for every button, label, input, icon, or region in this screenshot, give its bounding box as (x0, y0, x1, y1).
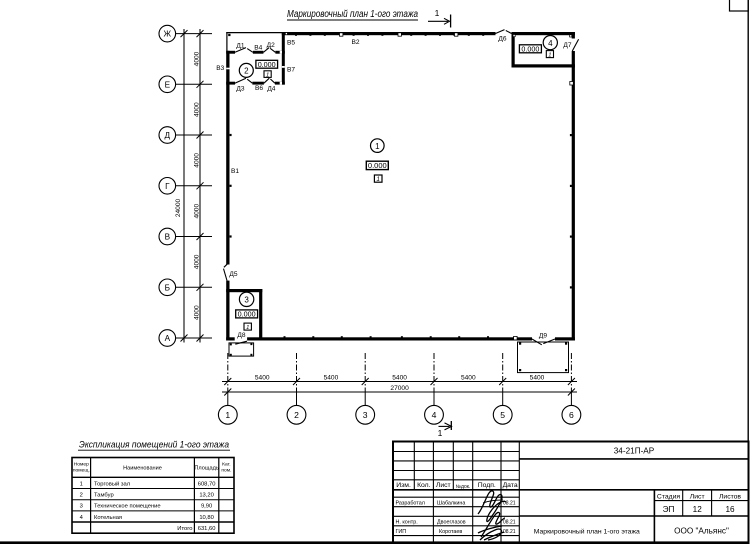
svg-text:5400: 5400 (392, 374, 407, 381)
svg-text:Лист: Лист (436, 482, 451, 489)
svg-text:10,80: 10,80 (199, 515, 214, 521)
svg-text:0.000: 0.000 (368, 161, 387, 170)
svg-text:5400: 5400 (461, 374, 476, 381)
svg-text:1: 1 (377, 177, 380, 183)
svg-text:Д2: Д2 (267, 42, 275, 49)
svg-text:Д6: Д6 (498, 36, 506, 43)
svg-text:А: А (165, 334, 171, 343)
svg-text:08.21: 08.21 (503, 500, 516, 506)
svg-text:помещ.: помещ. (73, 469, 90, 474)
svg-text:2: 2 (244, 67, 249, 76)
svg-text:Котельная: Котельная (94, 515, 122, 521)
svg-text:4: 4 (432, 410, 437, 420)
svg-text:Б: Б (165, 283, 170, 292)
svg-text:4: 4 (548, 39, 553, 48)
svg-text:ГИП: ГИП (396, 529, 407, 535)
svg-text:5400: 5400 (530, 374, 545, 381)
svg-text:ООО "Альянс": ООО "Альянс" (674, 527, 729, 536)
svg-text:3: 3 (80, 504, 83, 510)
svg-text:Лист: Лист (690, 493, 705, 500)
svg-text:27000: 27000 (390, 385, 409, 392)
svg-text:Экспликация помещений 1-ого эт: Экспликация помещений 1-ого этажа (79, 440, 229, 450)
svg-text:Д1: Д1 (236, 43, 244, 50)
svg-text:В7: В7 (287, 67, 295, 74)
svg-text:5400: 5400 (255, 374, 270, 381)
svg-text:Разработал: Разработал (396, 500, 425, 506)
svg-text:2: 2 (80, 493, 83, 499)
svg-text:Кат.: Кат. (222, 462, 231, 468)
svg-text:0.000: 0.000 (258, 60, 276, 69)
svg-text:В5: В5 (287, 39, 295, 46)
svg-text:Шабалкина: Шабалкина (437, 500, 465, 506)
svg-text:0.000: 0.000 (238, 310, 256, 319)
svg-text:В6: В6 (255, 85, 263, 92)
svg-text:4000: 4000 (193, 254, 200, 269)
svg-text:В2: В2 (351, 39, 359, 46)
svg-text:5: 5 (500, 410, 505, 420)
svg-text:1: 1 (266, 72, 269, 78)
svg-text:0.000: 0.000 (521, 44, 539, 53)
svg-text:Номер: Номер (74, 462, 89, 468)
svg-text:3: 3 (363, 410, 368, 420)
svg-text:Техническое помещение: Техническое помещение (94, 504, 161, 510)
svg-text:631,60: 631,60 (198, 526, 216, 532)
svg-text:08.21: 08.21 (503, 519, 516, 525)
svg-text:№док.: №док. (456, 484, 471, 490)
svg-text:4000: 4000 (193, 204, 200, 219)
svg-text:13,20: 13,20 (199, 493, 214, 499)
svg-text:4000: 4000 (193, 153, 200, 168)
svg-text:Наименование: Наименование (123, 466, 162, 472)
svg-text:4000: 4000 (193, 51, 200, 66)
svg-text:Д9: Д9 (539, 333, 547, 340)
svg-text:3: 3 (244, 296, 249, 305)
svg-text:Двоеглазов: Двоеглазов (437, 519, 466, 525)
svg-text:12: 12 (693, 505, 703, 514)
svg-text:Г: Г (165, 182, 170, 191)
svg-text:4000: 4000 (193, 305, 200, 320)
svg-text:Д8: Д8 (237, 332, 245, 339)
svg-text:Площадь: Площадь (194, 466, 218, 472)
svg-text:В3: В3 (216, 65, 224, 72)
svg-text:Дата: Дата (503, 482, 518, 489)
svg-text:Д7: Д7 (563, 42, 571, 49)
svg-text:Д4: Д4 (267, 86, 275, 93)
svg-text:608,70: 608,70 (198, 481, 216, 487)
svg-text:1: 1 (435, 8, 440, 18)
svg-text:Маркировочный план 1-ого этажа: Маркировочный план 1-ого этажа (534, 528, 640, 536)
svg-text:4000: 4000 (193, 102, 200, 117)
svg-text:24000: 24000 (175, 199, 182, 218)
svg-text:пом.: пом. (221, 469, 231, 474)
svg-text:2: 2 (294, 410, 299, 420)
svg-text:Итого: Итого (177, 526, 192, 532)
svg-text:В: В (165, 233, 171, 242)
svg-text:Подп.: Подп. (478, 482, 496, 489)
svg-text:1: 1 (80, 481, 83, 487)
svg-text:Е: Е (165, 80, 171, 89)
svg-text:1: 1 (246, 325, 249, 331)
svg-text:16: 16 (725, 505, 735, 514)
svg-text:Н. контр.: Н. контр. (396, 519, 418, 525)
svg-text:Тамбур: Тамбур (94, 493, 114, 499)
svg-text:Торговый зал: Торговый зал (94, 480, 130, 487)
svg-text:Д3: Д3 (236, 86, 244, 93)
svg-text:В1: В1 (231, 168, 239, 175)
svg-text:5400: 5400 (324, 374, 339, 381)
svg-text:1: 1 (438, 428, 443, 438)
svg-text:Листов: Листов (719, 493, 741, 500)
svg-text:Изм.: Изм. (396, 482, 411, 489)
svg-text:В4: В4 (254, 45, 262, 52)
svg-text:Кол.: Кол. (417, 482, 431, 489)
svg-text:9,90: 9,90 (201, 504, 212, 510)
svg-text:6: 6 (569, 410, 574, 420)
svg-text:Д5: Д5 (229, 271, 237, 278)
svg-text:Маркировочный план 1-ого этажа: Маркировочный план 1-ого этажа (287, 9, 418, 20)
svg-text:Стадия: Стадия (657, 493, 680, 500)
svg-text:1: 1 (375, 142, 380, 151)
svg-text:34-21П-АР: 34-21П-АР (614, 447, 655, 456)
svg-text:Ж: Ж (164, 30, 172, 39)
svg-text:ЭП: ЭП (663, 505, 675, 514)
svg-text:Коротаев: Коротаев (439, 529, 462, 535)
svg-text:Д: Д (165, 131, 171, 140)
svg-text:1: 1 (225, 410, 230, 420)
svg-text:1: 1 (548, 52, 551, 58)
svg-text:08.21: 08.21 (503, 529, 516, 535)
